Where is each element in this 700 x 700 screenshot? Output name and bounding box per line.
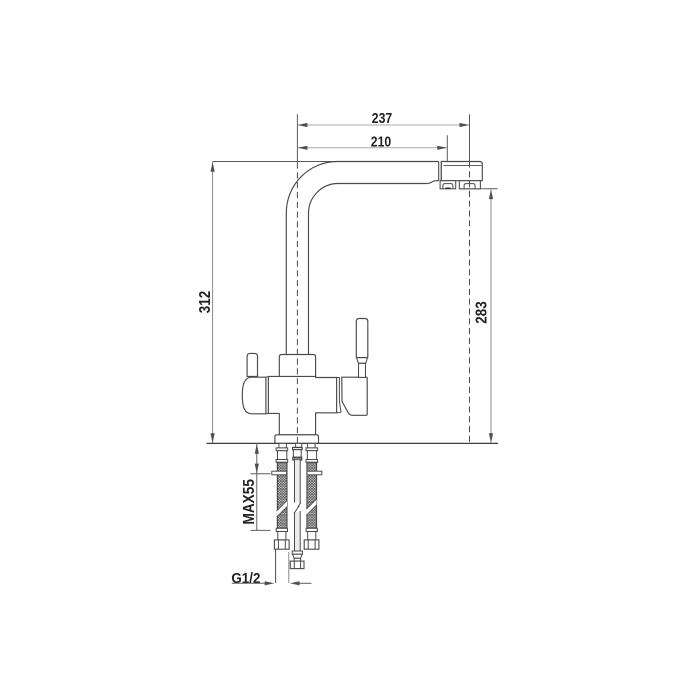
svg-text:MAX55: MAX55 [241,479,258,525]
svg-text:237: 237 [372,111,392,127]
svg-text:312: 312 [197,291,214,314]
svg-text:G1/2: G1/2 [231,570,260,587]
svg-text:210: 210 [371,135,391,151]
svg-text:283: 283 [473,301,490,324]
